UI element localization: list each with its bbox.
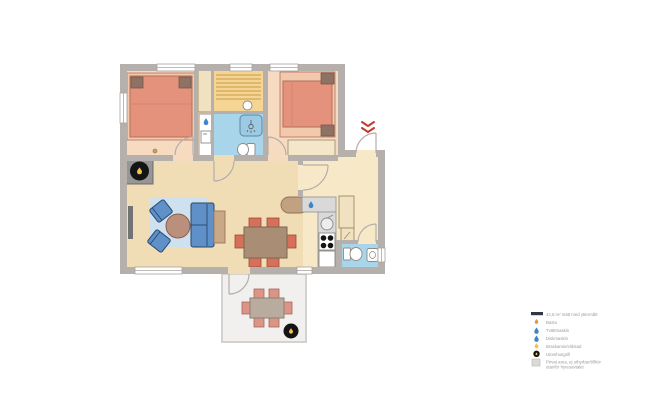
outdoor-chair: [254, 318, 264, 327]
washing-machine: [199, 114, 213, 156]
wc-toilet-tank: [344, 248, 351, 260]
water-drop-icon: [534, 327, 538, 333]
wardrobe: [198, 70, 212, 112]
wall: [234, 155, 268, 161]
burner: [328, 243, 334, 249]
sitting-group: [147, 197, 225, 253]
wall-bar-icon: [531, 312, 543, 315]
wall: [378, 262, 385, 274]
wall: [298, 64, 345, 71]
tall-cabinet: [339, 196, 354, 228]
legend-row: 42,5 m² mätt med yttermått: [531, 312, 598, 317]
legend-label: Braskamin/eldstad: [546, 344, 582, 349]
sofa: [191, 203, 214, 247]
legend-row: Tvättmaskin: [534, 327, 569, 333]
coffee-table: [166, 214, 190, 238]
wall: [211, 71, 214, 157]
wall: [312, 267, 385, 274]
toilet: [238, 144, 256, 156]
wall: [182, 267, 228, 274]
wall: [120, 123, 127, 274]
door-opening: [173, 155, 193, 161]
wall: [298, 161, 303, 165]
sofa-side-table: [214, 211, 225, 243]
wc-toilet-bowl: [350, 248, 362, 261]
pillow: [131, 77, 143, 88]
toilet-bowl: [238, 144, 249, 156]
legend-label: Diskmaskin: [546, 336, 569, 341]
wc-sink: [367, 249, 378, 262]
shower: [240, 115, 262, 136]
wood-stove: [126, 158, 153, 184]
wall: [338, 64, 345, 157]
wall: [336, 240, 358, 244]
pillow: [321, 73, 334, 84]
wall: [250, 267, 297, 274]
kitchen-cabinet: [319, 251, 335, 267]
kitchen-sink: [321, 218, 333, 230]
stove-burners: [319, 233, 335, 250]
double-bed-2: [280, 72, 335, 137]
wall: [214, 111, 263, 114]
legend: 42,5 m² mätt med yttermått Bastu Tvättma…: [531, 312, 601, 370]
outdoor-chair: [269, 318, 279, 327]
floor-plan-page: 42,5 m² mätt med yttermått Bastu Tvättma…: [0, 0, 650, 400]
wall: [127, 155, 173, 161]
legend-label: 42,5 m² mätt med yttermått: [546, 312, 598, 317]
legend-row: Utomhusgrill: [533, 351, 570, 357]
door-opening: [268, 155, 288, 161]
outdoor-chair: [269, 289, 279, 298]
floor-plan-svg: 42,5 m² mätt med yttermått Bastu Tvättma…: [0, 0, 650, 400]
outdoor-chair: [242, 302, 250, 314]
outdoor-table: [250, 298, 284, 318]
wall: [120, 64, 127, 93]
pillow: [179, 77, 191, 88]
wall: [336, 243, 342, 268]
chevron-down-icon: [362, 122, 374, 126]
legend-label: Tvättmaskin: [546, 328, 570, 333]
chevron-down-icon: [362, 128, 374, 132]
water-drop-icon: [534, 335, 538, 341]
wall: [298, 190, 303, 197]
wall: [195, 64, 230, 71]
entrance-chevrons-icon: [362, 122, 374, 132]
bedroom-bench: [288, 140, 335, 156]
double-bed-1: [127, 73, 195, 140]
burner: [328, 235, 334, 241]
burner: [321, 235, 327, 241]
stove-top: [319, 233, 335, 250]
door-opening: [228, 267, 250, 274]
door-opening: [298, 165, 303, 190]
washing-machine-door: [201, 131, 211, 143]
legend-label: utanför hyresavtalet: [546, 364, 585, 369]
wall: [338, 150, 356, 157]
outdoor-chair: [284, 302, 292, 314]
flame-icon: [535, 343, 539, 348]
private-area-swatch: [532, 359, 540, 366]
wall: [378, 150, 385, 248]
legend-row: Braskamin/eldstad: [535, 343, 582, 349]
wall: [252, 64, 270, 71]
door-opening: [214, 155, 234, 161]
door-opening: [358, 240, 376, 244]
wall: [120, 267, 135, 274]
burner: [321, 243, 327, 249]
legend-label: Utomhusgrill: [546, 352, 570, 357]
sauna-heater: [243, 101, 252, 110]
bed-mattress: [283, 81, 332, 127]
tv-bench: [128, 206, 133, 239]
outdoor-chair: [254, 289, 264, 298]
dining-table: [244, 227, 287, 258]
sauna-flame-icon: [535, 319, 539, 324]
legend-label: Bastu: [546, 320, 558, 325]
legend-row: Privat area, ej uthyrbar/tillhör utanför…: [532, 359, 601, 369]
door-handle: [153, 149, 157, 153]
entrance-opening: [356, 150, 376, 157]
outdoor-grill: [284, 324, 299, 339]
wall: [194, 71, 198, 157]
legend-row: Diskmaskin: [534, 335, 568, 341]
kitchen-counter: [302, 197, 336, 212]
legend-row: Bastu: [535, 319, 558, 325]
wall: [288, 155, 338, 161]
pillow: [321, 125, 334, 136]
wall: [263, 71, 268, 157]
